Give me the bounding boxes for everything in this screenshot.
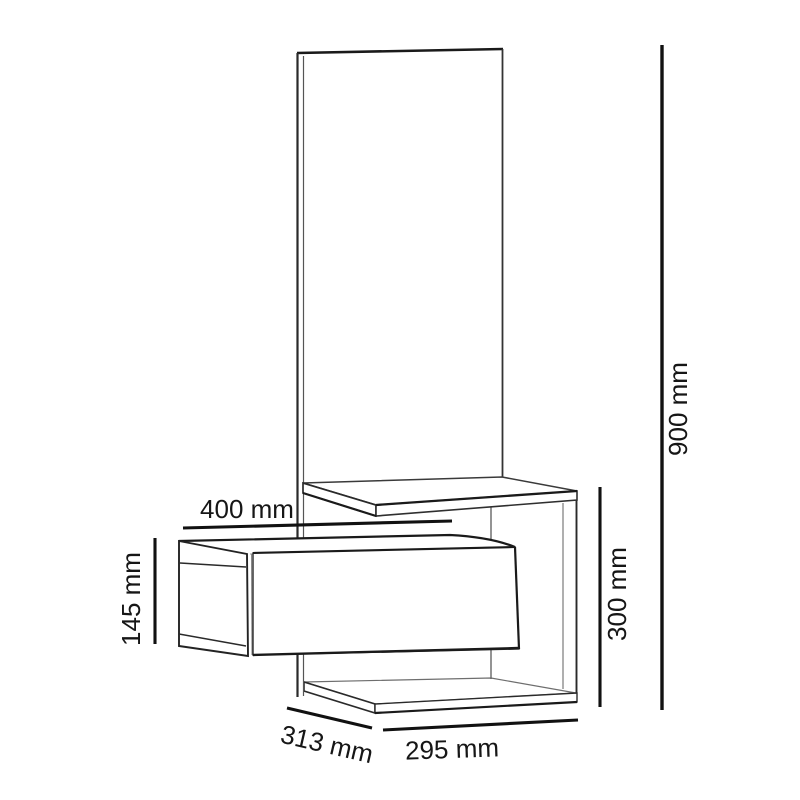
dim-line-295 bbox=[383, 720, 578, 730]
furniture-diagram: 400 mm 145 mm 900 mm 300 mm 313 mm 295 m… bbox=[0, 0, 800, 800]
drawer-box bbox=[179, 535, 519, 656]
dimension-annotations: 400 mm 145 mm 900 mm 300 mm 313 mm 295 m… bbox=[116, 45, 693, 769]
top-shelf bbox=[303, 477, 577, 516]
drawer-front-face bbox=[253, 547, 519, 655]
dim-label-900: 900 mm bbox=[663, 362, 693, 456]
drawer-gap-edge bbox=[252, 554, 253, 655]
dim-label-145: 145 mm bbox=[116, 552, 146, 646]
drawer-left-end-face bbox=[179, 541, 248, 656]
back-panel-top-edge bbox=[297, 49, 503, 53]
dim-label-300: 300 mm bbox=[602, 547, 632, 641]
bottom-shelf bbox=[304, 678, 577, 713]
dim-label-295: 295 mm bbox=[405, 732, 500, 765]
right-side-panel bbox=[563, 492, 577, 693]
drawing-canvas: 400 mm 145 mm 900 mm 300 mm 313 mm 295 m… bbox=[0, 0, 800, 800]
dim-label-400: 400 mm bbox=[200, 494, 294, 524]
